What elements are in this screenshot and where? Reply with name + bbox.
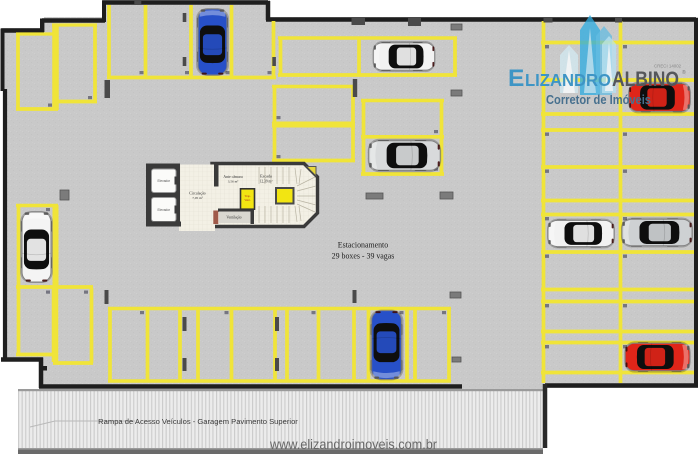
svg-text:Ante câmara: Ante câmara xyxy=(223,175,243,179)
svg-text:®: ® xyxy=(682,69,686,76)
svg-text:Elevador: Elevador xyxy=(158,179,172,183)
svg-text:Escada: Escada xyxy=(260,174,272,179)
svg-text:Corretor de Imóveis: Corretor de Imóveis xyxy=(546,92,651,107)
svg-text:29 boxes - 39 vagas: 29 boxes - 39 vagas xyxy=(332,252,395,261)
svg-text:Vent.: Vent. xyxy=(244,198,250,202)
svg-text:www.elizandroimoveis.com.br: www.elizandroimoveis.com.br xyxy=(269,437,437,452)
svg-text:LIZANDRO: LIZANDRO xyxy=(525,70,611,90)
svg-text:CRECI 14002: CRECI 14002 xyxy=(654,64,682,69)
svg-text:Ventilação: Ventilação xyxy=(226,216,241,220)
svg-text:Estacionamento: Estacionamento xyxy=(338,241,388,250)
svg-text:Circulação: Circulação xyxy=(189,192,206,196)
svg-text:Elevador: Elevador xyxy=(158,208,172,212)
svg-text:ALBINO: ALBINO xyxy=(612,67,679,91)
svg-text:E: E xyxy=(508,65,524,92)
svg-text:Rampa de Acesso Veículos - Gar: Rampa de Acesso Veículos - Garagem Pavim… xyxy=(98,417,298,426)
